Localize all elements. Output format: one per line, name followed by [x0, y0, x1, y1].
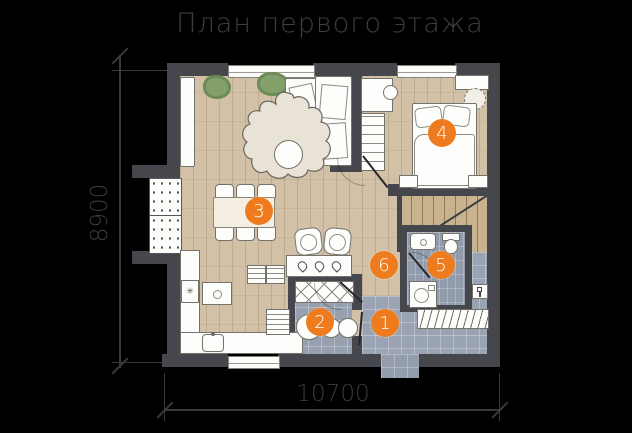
dimension-extension-line	[499, 373, 500, 421]
floor-plan-canvas: План первого этажа 8900 10700	[0, 0, 632, 433]
room-marker-pantry: 2	[306, 308, 334, 336]
tv-cabinet	[180, 77, 195, 167]
armchair-seat	[299, 233, 318, 252]
dimension-line-horizontal	[165, 409, 501, 411]
window	[397, 65, 457, 78]
dining-chair	[257, 226, 276, 241]
entry-porch	[381, 354, 419, 378]
plant	[203, 75, 231, 99]
armchair-seat	[328, 233, 347, 252]
exterior-wall	[313, 63, 397, 76]
washer-door	[414, 288, 429, 303]
cooker	[266, 309, 290, 335]
window	[228, 356, 280, 369]
drain	[420, 239, 427, 246]
page-title: План первого этажа	[176, 8, 484, 39]
electric-panel	[472, 284, 488, 299]
side-table	[274, 140, 303, 169]
bay-window-wall	[132, 165, 180, 178]
small-appliance	[247, 265, 266, 284]
flame-icon	[330, 259, 343, 272]
faucet	[211, 332, 215, 336]
worktop-block	[202, 282, 232, 305]
exterior-wall	[278, 354, 381, 367]
storage-tank	[338, 318, 358, 338]
exterior-wall	[167, 251, 180, 367]
kitchen-counter-bottom	[180, 332, 303, 354]
window-frame	[229, 363, 279, 364]
kitchen-sink	[202, 334, 224, 352]
room-number: 3	[253, 201, 264, 222]
bathroom-wall	[465, 225, 472, 312]
dimension-extension-line	[112, 70, 168, 71]
bathroom-sink	[410, 233, 436, 250]
width-dimension-label: 10700	[296, 381, 369, 407]
bay-window-radiator	[149, 178, 182, 217]
room-number: 2	[314, 312, 325, 333]
height-dimension-label: 8900	[87, 184, 113, 243]
desk-chair	[383, 85, 398, 100]
dimension-extension-line	[164, 373, 165, 421]
room-number: 4	[436, 123, 447, 144]
room-marker-living-room: 3	[245, 197, 273, 225]
dining-chair	[236, 226, 255, 241]
stair-stringer-wall	[397, 196, 402, 252]
room-marker-hallway: 6	[370, 251, 398, 279]
nightstand	[399, 175, 418, 188]
armchair	[293, 226, 323, 256]
room-number: 5	[435, 255, 446, 276]
room-marker-entrance: 1	[371, 309, 399, 337]
nightstand	[468, 175, 488, 188]
plug-stem	[479, 292, 481, 297]
room-marker-bedroom: 4	[428, 119, 456, 147]
room-number: 6	[378, 255, 389, 276]
dining-chair	[215, 226, 234, 241]
room-marker-bathroom: 5	[427, 251, 455, 279]
flame-icon	[296, 259, 309, 272]
bay-window-radiator	[149, 215, 182, 254]
fridge: ✳	[181, 280, 199, 303]
flame-icon	[313, 259, 326, 272]
exterior-wall	[167, 63, 180, 167]
window-frame	[398, 72, 456, 73]
dimension-extension-line	[112, 362, 168, 363]
snowflake-icon: ✳	[186, 287, 194, 297]
room-number: 1	[379, 313, 390, 334]
washer-panel	[428, 285, 435, 291]
worktop-detail	[213, 290, 222, 299]
dimension-line-vertical	[119, 55, 121, 368]
gas-hob	[286, 255, 352, 277]
small-appliance	[266, 265, 285, 284]
armchair	[323, 227, 353, 257]
bathroom-wall	[400, 225, 472, 232]
exterior-wall	[419, 354, 500, 367]
washing-machine	[409, 281, 437, 308]
coat-rack	[417, 309, 489, 329]
